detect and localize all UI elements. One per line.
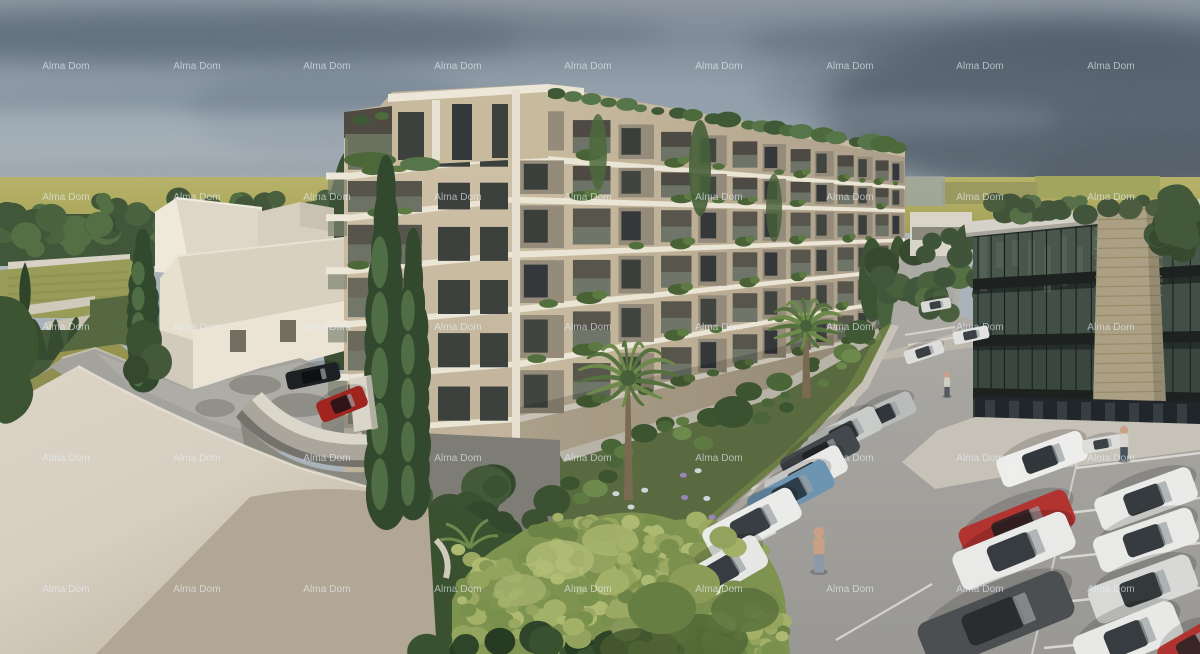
svg-text:Alma Dom: Alma Dom xyxy=(303,61,350,72)
svg-text:Alma Dom: Alma Dom xyxy=(695,584,742,595)
svg-text:Alma Dom: Alma Dom xyxy=(826,584,873,595)
svg-text:Alma Dom: Alma Dom xyxy=(434,453,481,464)
svg-text:Alma Dom: Alma Dom xyxy=(826,453,873,464)
svg-text:Alma Dom: Alma Dom xyxy=(42,453,89,464)
svg-text:Alma Dom: Alma Dom xyxy=(826,192,873,203)
svg-text:Alma Dom: Alma Dom xyxy=(434,61,481,72)
svg-text:Alma Dom: Alma Dom xyxy=(173,453,220,464)
svg-text:Alma Dom: Alma Dom xyxy=(42,322,89,333)
svg-text:Alma Dom: Alma Dom xyxy=(564,322,611,333)
svg-text:Alma Dom: Alma Dom xyxy=(956,453,1003,464)
svg-text:Alma Dom: Alma Dom xyxy=(42,192,89,203)
svg-text:Alma Dom: Alma Dom xyxy=(1087,322,1134,333)
svg-text:Alma Dom: Alma Dom xyxy=(303,322,350,333)
svg-text:Alma Dom: Alma Dom xyxy=(695,453,742,464)
svg-text:Alma Dom: Alma Dom xyxy=(434,584,481,595)
svg-text:Alma Dom: Alma Dom xyxy=(564,192,611,203)
svg-text:Alma Dom: Alma Dom xyxy=(826,322,873,333)
svg-text:Alma Dom: Alma Dom xyxy=(303,192,350,203)
svg-text:Alma Dom: Alma Dom xyxy=(173,584,220,595)
svg-text:Alma Dom: Alma Dom xyxy=(695,322,742,333)
svg-text:Alma Dom: Alma Dom xyxy=(695,192,742,203)
svg-text:Alma Dom: Alma Dom xyxy=(695,61,742,72)
svg-text:Alma Dom: Alma Dom xyxy=(956,192,1003,203)
svg-text:Alma Dom: Alma Dom xyxy=(956,61,1003,72)
svg-text:Alma Dom: Alma Dom xyxy=(564,584,611,595)
svg-text:Alma Dom: Alma Dom xyxy=(564,453,611,464)
svg-text:Alma Dom: Alma Dom xyxy=(303,453,350,464)
svg-text:Alma Dom: Alma Dom xyxy=(173,322,220,333)
svg-text:Alma Dom: Alma Dom xyxy=(1087,453,1134,464)
svg-text:Alma Dom: Alma Dom xyxy=(42,61,89,72)
svg-text:Alma Dom: Alma Dom xyxy=(173,192,220,203)
svg-text:Alma Dom: Alma Dom xyxy=(956,322,1003,333)
svg-text:Alma Dom: Alma Dom xyxy=(826,61,873,72)
svg-text:Alma Dom: Alma Dom xyxy=(956,584,1003,595)
svg-text:Alma Dom: Alma Dom xyxy=(42,584,89,595)
svg-text:Alma Dom: Alma Dom xyxy=(434,322,481,333)
svg-text:Alma Dom: Alma Dom xyxy=(173,61,220,72)
svg-text:Alma Dom: Alma Dom xyxy=(1087,584,1134,595)
svg-text:Alma Dom: Alma Dom xyxy=(303,584,350,595)
svg-text:Alma Dom: Alma Dom xyxy=(1087,61,1134,72)
svg-text:Alma Dom: Alma Dom xyxy=(564,61,611,72)
svg-text:Alma Dom: Alma Dom xyxy=(434,192,481,203)
svg-text:Alma Dom: Alma Dom xyxy=(1087,192,1134,203)
